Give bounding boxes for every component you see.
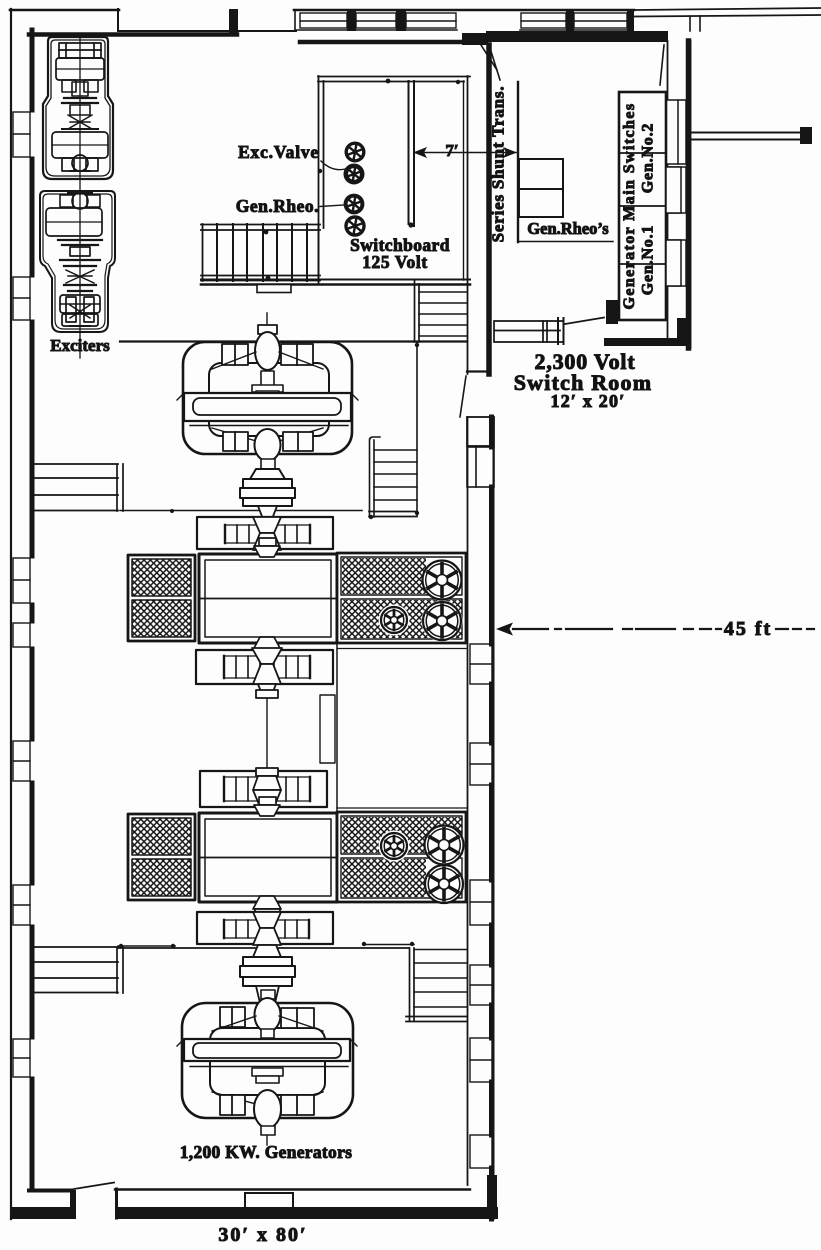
svg-text:Series Shunt Trans.: Series Shunt Trans. [489, 86, 508, 243]
svg-text:Gen.Rheo’s: Gen.Rheo’s [527, 219, 609, 238]
svg-text:30′ x 80′: 30′ x 80′ [218, 1224, 307, 1246]
svg-text:1,200 KW. Generators: 1,200 KW. Generators [180, 1142, 353, 1162]
svg-text:Gen.No.2: Gen.No.2 [640, 123, 657, 193]
svg-text:Exc.Valve: Exc.Valve [238, 142, 319, 162]
svg-text:Generator Main Switches: Generator Main Switches [621, 103, 638, 310]
svg-text:Gen.Rheo.: Gen.Rheo. [236, 196, 319, 216]
svg-text:Exciters: Exciters [50, 336, 110, 355]
svg-text:7′: 7′ [445, 141, 458, 160]
svg-text:12′ x 20′: 12′ x 20′ [551, 391, 626, 411]
svg-text:45 ft: 45 ft [724, 618, 772, 640]
svg-text:Gen.No.1: Gen.No.1 [640, 225, 657, 295]
svg-text:125 Volt: 125 Volt [362, 252, 428, 272]
